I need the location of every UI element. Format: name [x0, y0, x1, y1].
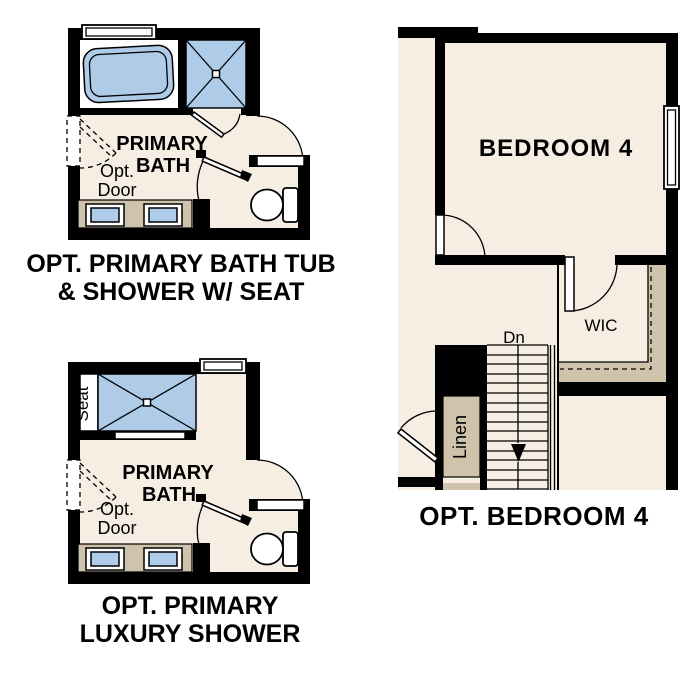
title-line: LUXURY SHOWER: [16, 620, 364, 648]
plan-bedroom4: BEDROOM 4 WIC Dn Linen: [398, 27, 679, 490]
title-line: OPT. BEDROOM 4: [396, 501, 672, 532]
wall: [246, 362, 260, 460]
wall: [68, 572, 310, 584]
wall: [298, 155, 310, 240]
opt-door-label: Door: [97, 180, 136, 200]
plan-bath-tub-shower: PRIMARY BATH Opt. Door: [67, 25, 310, 240]
entry-door-leaf: [257, 500, 304, 510]
wall: [398, 477, 438, 487]
wall: [435, 33, 666, 43]
plan-title-bedroom4: OPT. BEDROOM 4: [396, 501, 672, 532]
wall: [68, 228, 310, 240]
wall: [193, 543, 210, 584]
floorplan-sheet: PRIMARY BATH Opt. Door: [0, 0, 687, 687]
title-line: & SHOWER W/ SEAT: [6, 278, 356, 306]
plan-luxury-shower: Seat PRIMARY BATH Opt. Door: [67, 359, 310, 584]
wall: [666, 188, 678, 490]
wall: [435, 255, 565, 265]
wall: [68, 108, 193, 115]
shower-drain: [213, 71, 220, 78]
title-line: OPT. PRIMARY BATH TUB: [6, 250, 356, 278]
wall: [435, 396, 443, 490]
plan-title-bath-tub-shower: OPT. PRIMARY BATH TUB & SHOWER W/ SEAT: [6, 250, 356, 306]
wall: [193, 199, 210, 240]
wall: [178, 40, 186, 115]
wall: [435, 345, 487, 396]
sink-basin: [149, 208, 177, 222]
room-label: BATH: [142, 484, 196, 506]
stairs-down-label: Dn: [503, 328, 525, 347]
wall: [298, 499, 310, 584]
wall: [480, 396, 487, 490]
opt-door-label: Opt.: [100, 499, 134, 519]
room-label: PRIMARY: [116, 133, 208, 155]
sink-basin: [149, 552, 177, 566]
window: [200, 359, 246, 373]
seat-label: Seat: [73, 386, 92, 421]
shower-drain: [144, 399, 151, 406]
opt-door-label: Door: [97, 518, 136, 538]
wall: [246, 28, 260, 116]
sink-basin: [91, 552, 119, 566]
toilet: [251, 188, 298, 222]
wall: [557, 382, 678, 396]
wall: [615, 255, 666, 265]
linen-label: Linen: [450, 415, 470, 459]
vanity: [78, 544, 192, 572]
sink-basin: [91, 208, 119, 222]
opt-door-label: Opt.: [100, 161, 134, 181]
wall: [666, 33, 678, 108]
title-line: OPT. PRIMARY: [16, 592, 364, 620]
shower-door: [115, 432, 185, 439]
shower-pan: [186, 40, 246, 108]
vanity: [78, 200, 192, 228]
plan-title-luxury-shower: OPT. PRIMARY LUXURY SHOWER: [16, 592, 364, 648]
wic-label: WIC: [584, 316, 617, 335]
entry-door-leaf: [257, 156, 304, 166]
wall: [435, 38, 445, 215]
room-label: BATH: [136, 155, 190, 177]
toilet: [251, 532, 298, 566]
shower-pan: [98, 374, 196, 431]
room-label: PRIMARY: [122, 462, 214, 484]
window: [82, 25, 156, 39]
room-label: BEDROOM 4: [479, 135, 633, 162]
floorplan-drawing: PRIMARY BATH Opt. Door: [0, 0, 687, 687]
bathtub: [83, 45, 175, 104]
window: [664, 106, 679, 189]
wall: [241, 108, 260, 115]
